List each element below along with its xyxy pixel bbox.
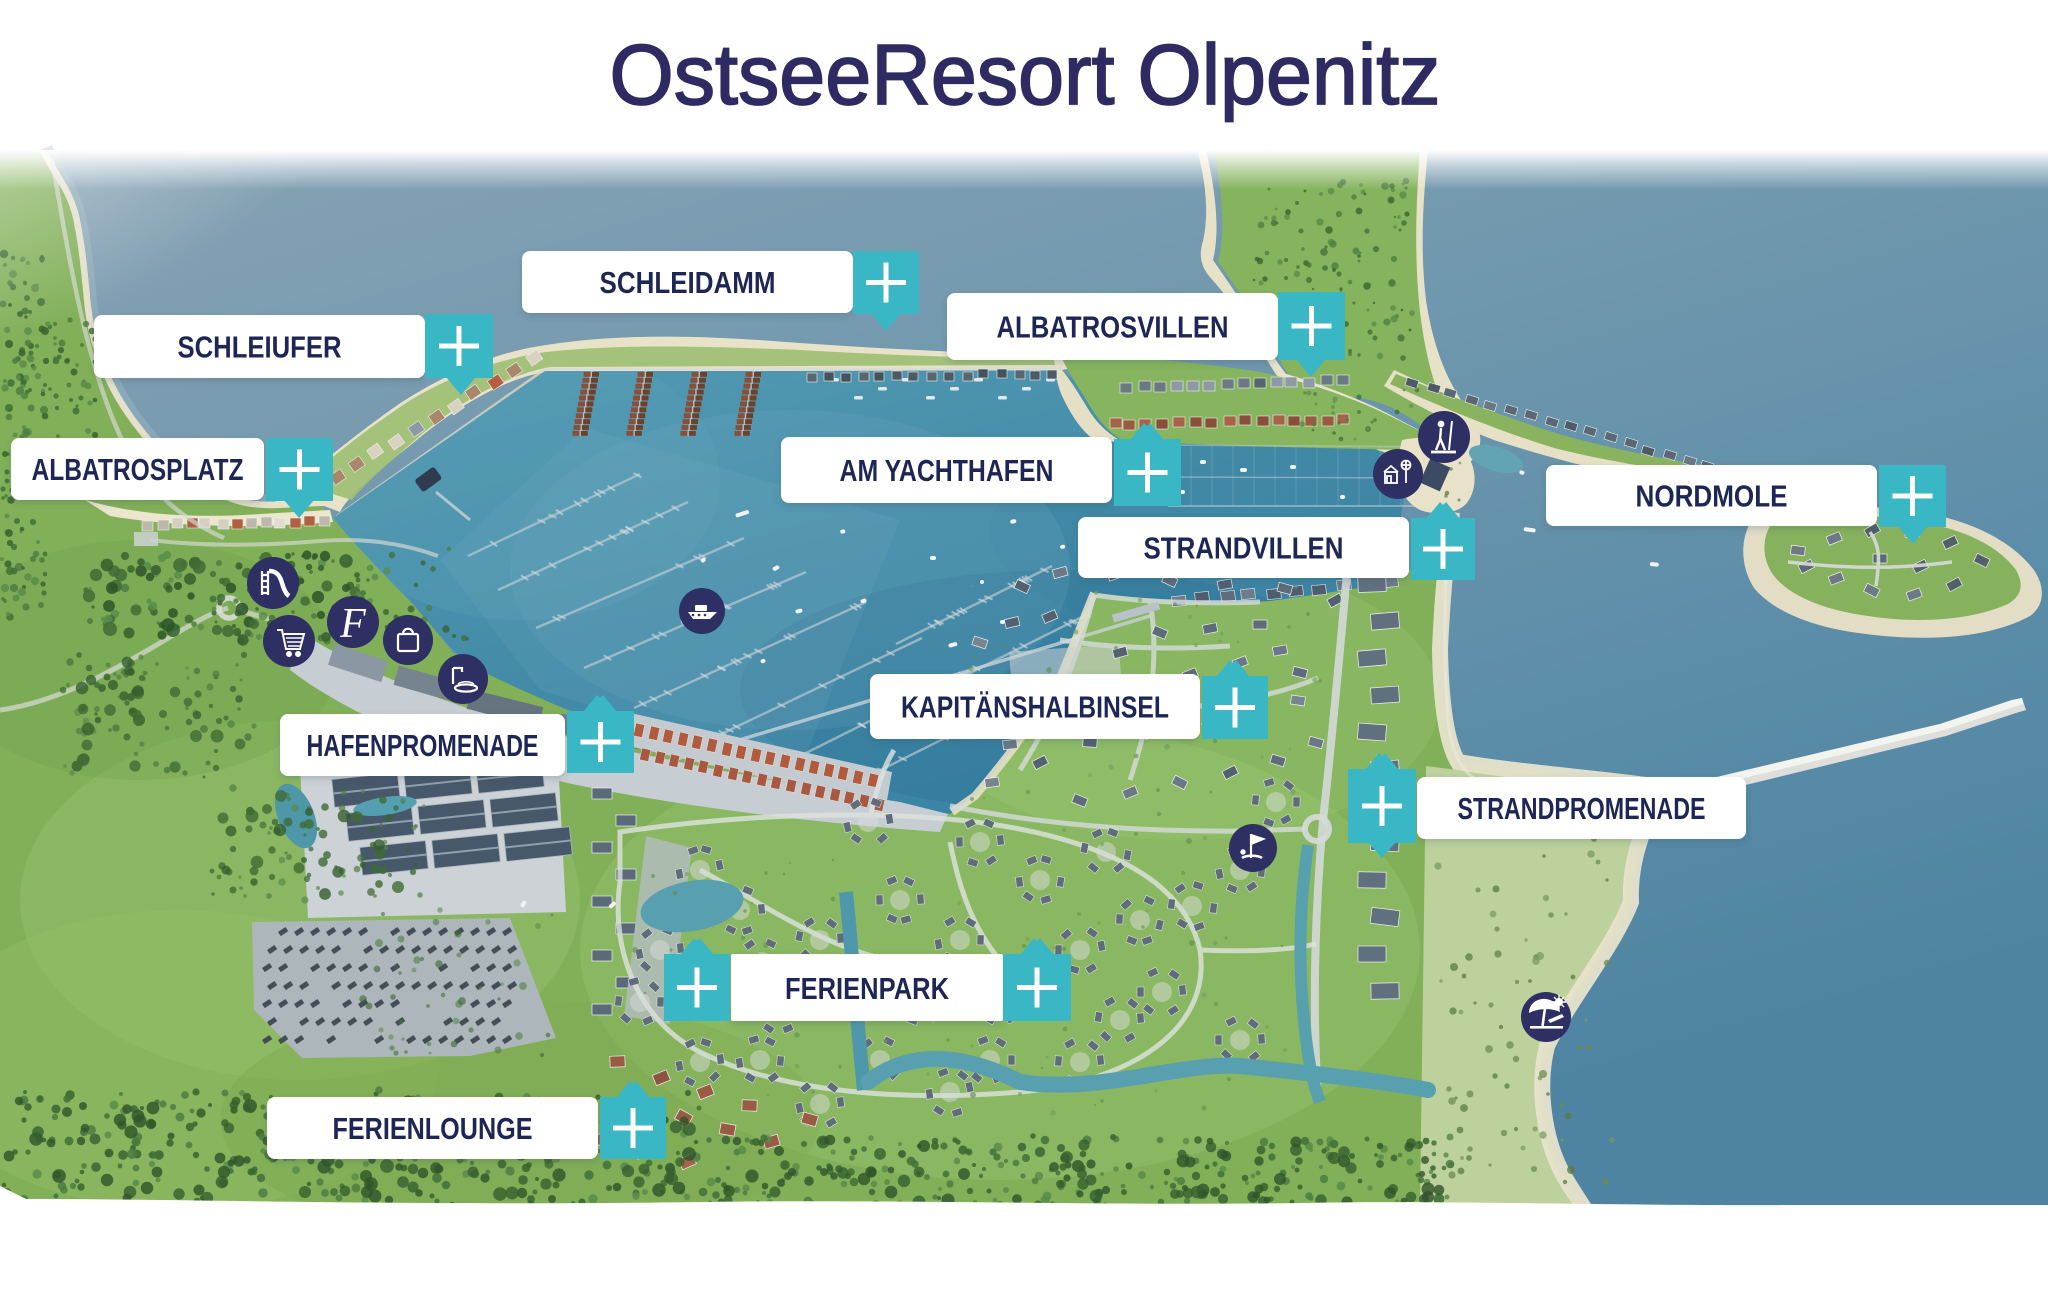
svg-text:STRANDPROMENADE: STRANDPROMENADE bbox=[1458, 791, 1706, 826]
svg-text:HAFENPROMENADE: HAFENPROMENADE bbox=[307, 728, 539, 763]
svg-text:NORDMOLE: NORDMOLE bbox=[1636, 479, 1788, 514]
svg-text:SCHLEIUFER: SCHLEIUFER bbox=[178, 330, 342, 365]
svg-text:AM YACHTHAFEN: AM YACHTHAFEN bbox=[840, 453, 1054, 488]
svg-text:SCHLEIDAMM: SCHLEIDAMM bbox=[600, 265, 776, 300]
svg-text:FERIENPARK: FERIENPARK bbox=[785, 971, 950, 1006]
svg-text:F: F bbox=[339, 601, 366, 647]
svg-text:ALBATROSPLATZ: ALBATROSPLATZ bbox=[32, 452, 244, 487]
svg-text:STRANDVILLEN: STRANDVILLEN bbox=[1144, 531, 1344, 566]
svg-text:OstseeResort Olpenitz: OstseeResort Olpenitz bbox=[610, 28, 1441, 123]
svg-text:KAPITÄNSHALBINSEL: KAPITÄNSHALBINSEL bbox=[901, 690, 1169, 725]
svg-text:ALBATROSVILLEN: ALBATROSVILLEN bbox=[997, 310, 1229, 345]
svg-text:FERIENLOUNGE: FERIENLOUNGE bbox=[333, 1111, 533, 1146]
